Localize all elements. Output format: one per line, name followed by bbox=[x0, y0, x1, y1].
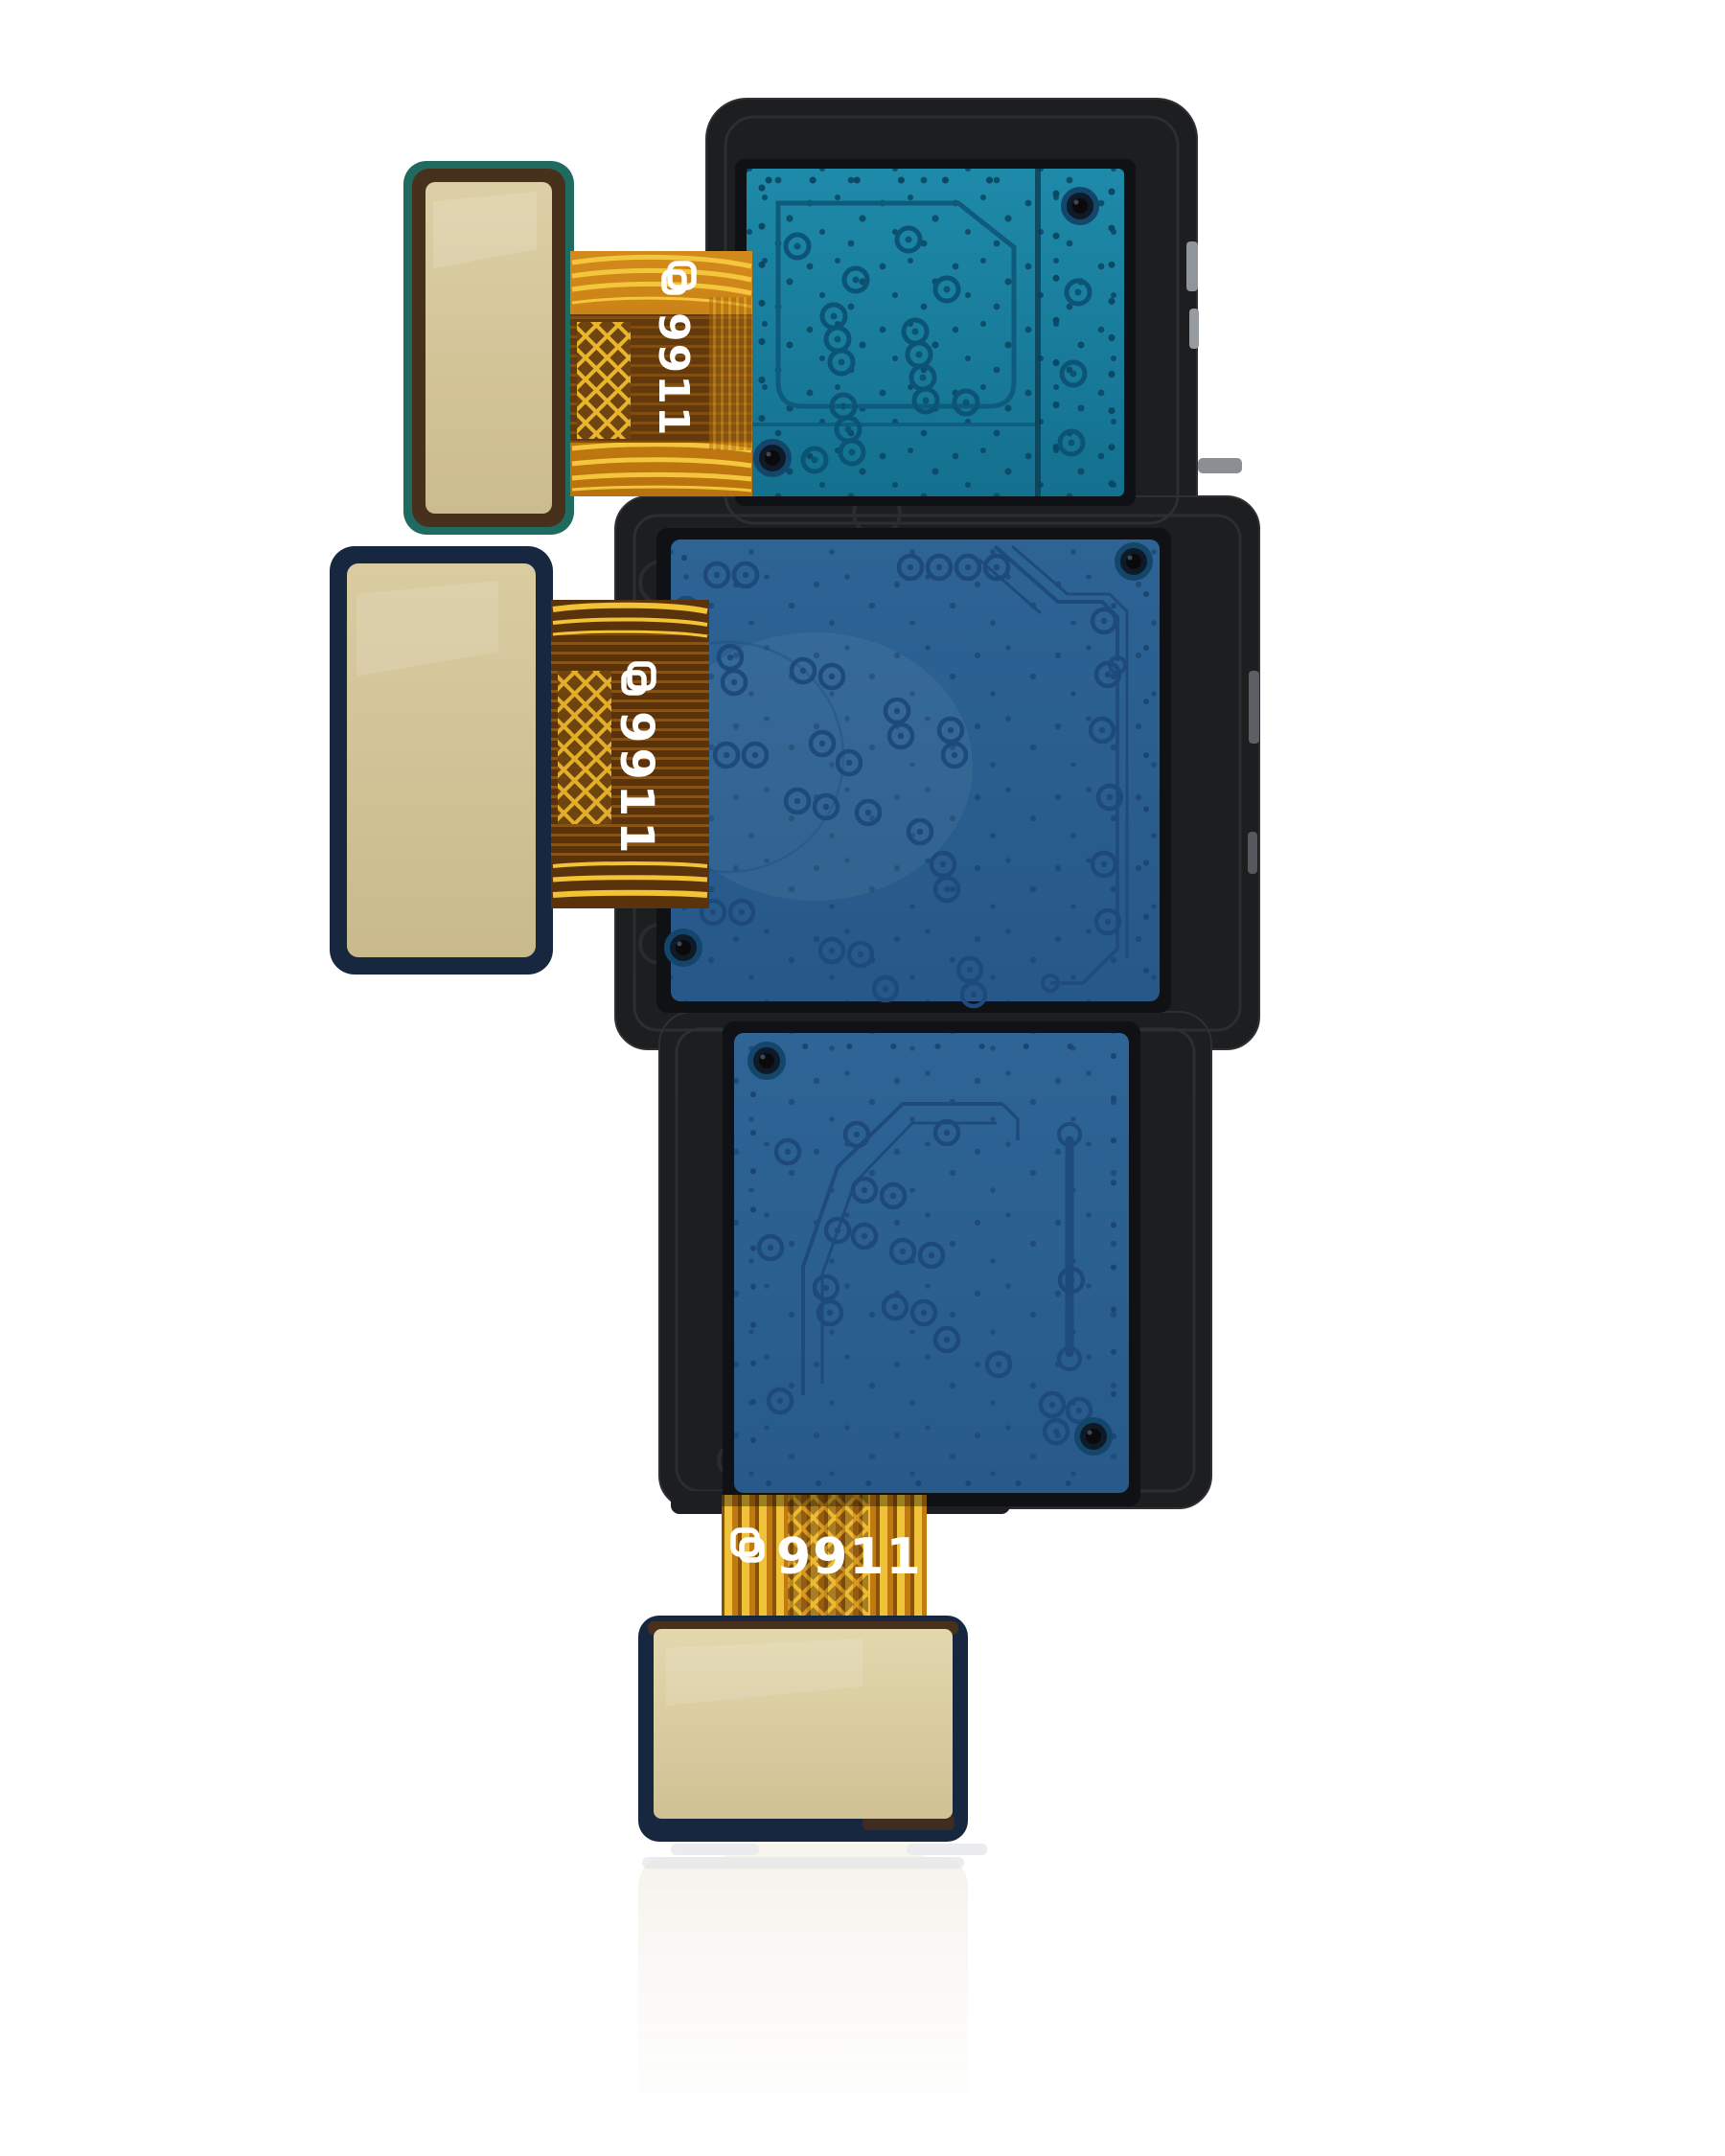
flex-cable-middle: 9911 bbox=[551, 600, 709, 908]
screw-bottom-pcb-bottom-right bbox=[1077, 1420, 1110, 1453]
flex-top-label: 9911 bbox=[649, 312, 698, 437]
screw-middle-top-right bbox=[1117, 545, 1150, 578]
flex-middle-hatch-patch bbox=[558, 671, 611, 824]
flex-cable-top: 9911 bbox=[570, 251, 752, 496]
screw-middle-bottom-left bbox=[667, 931, 700, 964]
camera-module-illustration: 9911 9911 9911 bbox=[0, 0, 1725, 2156]
contact-pad-middle bbox=[330, 546, 553, 975]
product-photo-camera-module: 9911 9911 9911 bbox=[0, 0, 1725, 2156]
pcb-top-sensor bbox=[747, 169, 1124, 496]
screw-top-right bbox=[1064, 190, 1096, 222]
contact-pad-top bbox=[403, 161, 574, 535]
flex-cable-bottom: 9911 bbox=[722, 1495, 927, 1621]
table-reflection bbox=[638, 1844, 987, 2145]
screw-bottom-pcb-top-left bbox=[750, 1044, 783, 1077]
flex-bottom-label: 9911 bbox=[776, 1528, 923, 1586]
contact-pad-bottom bbox=[638, 1616, 968, 1842]
pcb-top-divider bbox=[1035, 169, 1041, 496]
pcb-bottom-sensor bbox=[734, 1033, 1129, 1493]
flex-top-hatch-patch bbox=[577, 322, 631, 439]
flex-middle-label: 9911 bbox=[609, 711, 663, 859]
screw-bottom-left bbox=[756, 442, 789, 474]
